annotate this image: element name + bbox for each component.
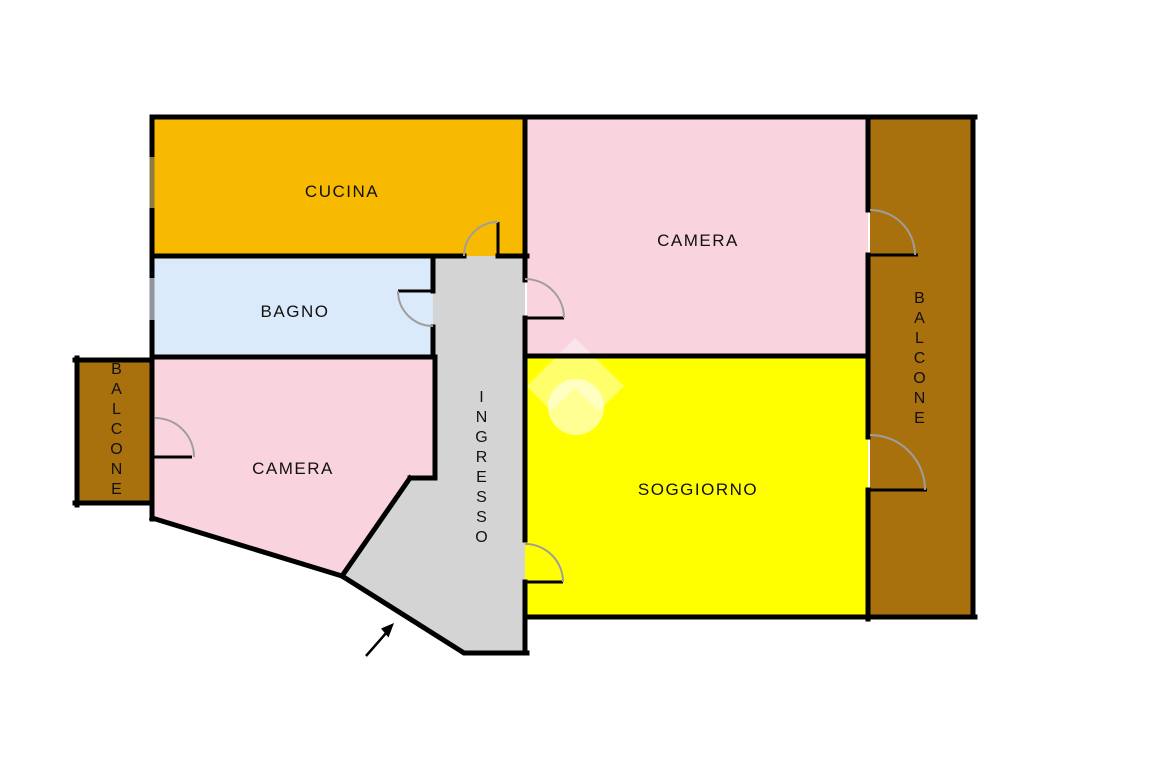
watermark-circle [548,379,604,435]
label-cucina: CUCINA [305,182,379,202]
label-camera-sud: CAMERA [252,459,334,479]
floor-plan: CUCINA CAMERA BAGNO CAMERA SOGGIORNO ING… [0,0,1154,768]
label-soggiorno: SOGGIORNO [638,480,758,500]
label-camera-nord: CAMERA [657,231,739,251]
entrance-arrow-icon [366,623,394,656]
floor-plan-drawing [0,0,1154,768]
label-balcone-left: BALCONE [107,361,125,501]
label-balcone-right: BALCONE [910,290,928,430]
entrance-arrow-shaft [366,632,387,656]
label-ingresso: INGRESSO [472,389,490,549]
label-bagno: BAGNO [261,302,330,322]
